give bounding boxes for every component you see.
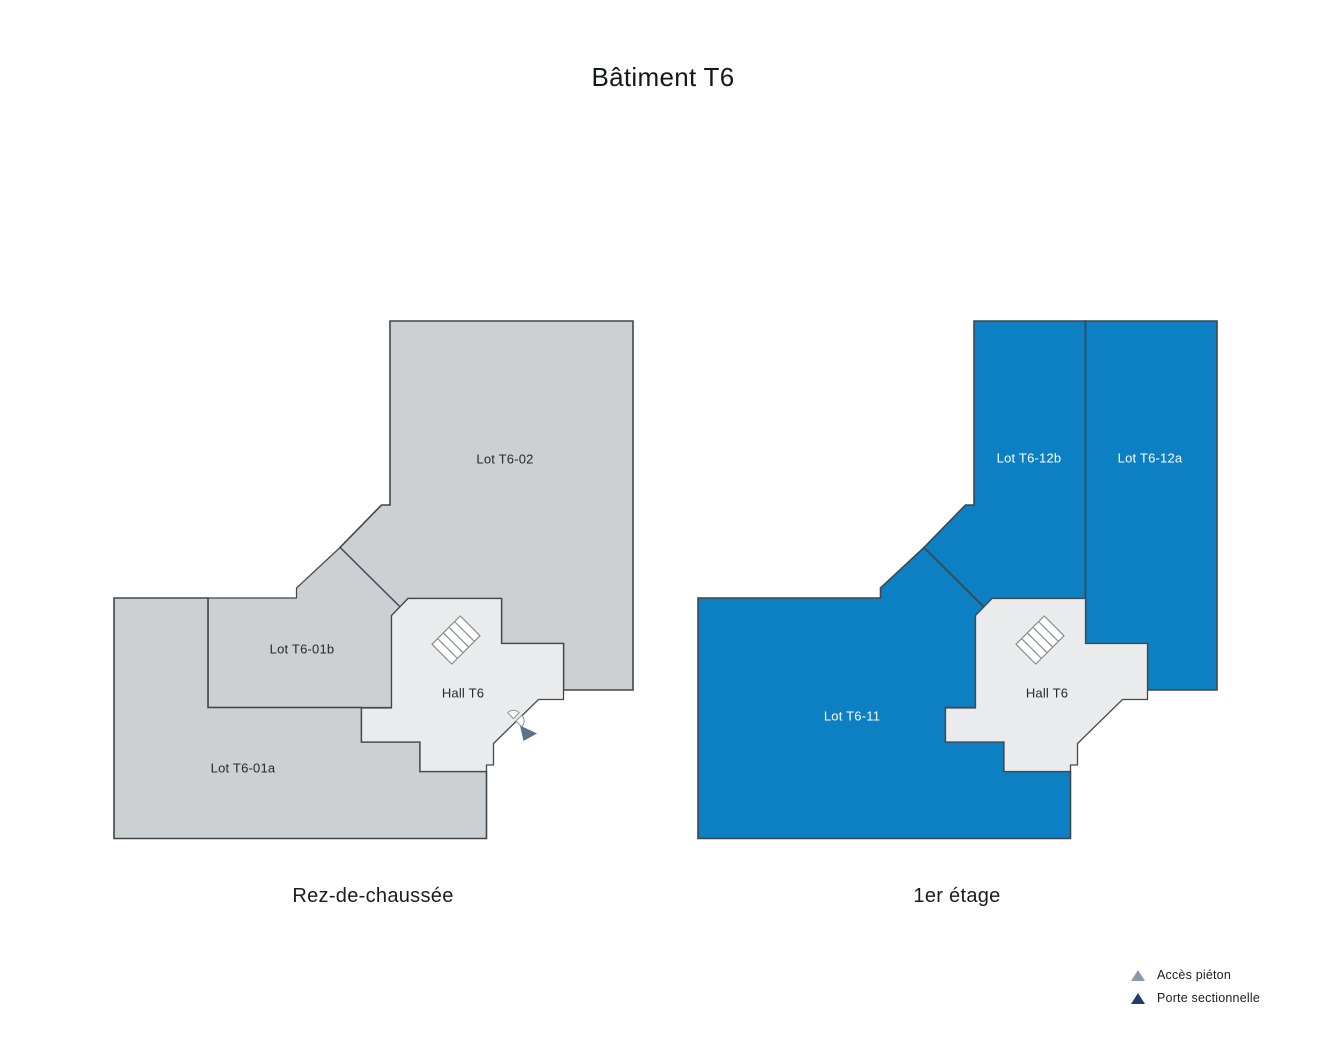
lot-t6-12a-label: Lot T6-12a	[1118, 451, 1183, 466]
floor-first	[698, 321, 1217, 839]
caption-first-floor: 1er étage	[913, 885, 1000, 908]
floor-plan-svg	[0, 0, 1330, 1060]
page: Bâtiment T6	[0, 0, 1330, 1060]
lot-t6-12b-label: Lot T6-12b	[997, 451, 1062, 466]
lot-t6-11-label: Lot T6-11	[824, 709, 880, 724]
pedestrian-access-legend-icon	[1131, 970, 1145, 981]
lot-t6-01b-label: Lot T6-01b	[270, 642, 335, 657]
hall-t6-first-label: Hall T6	[1026, 686, 1068, 701]
pedestrian-access-icon	[520, 726, 537, 742]
legend: Accès piéton Porte sectionnelle	[1131, 967, 1260, 1006]
legend-label-pedestrian: Accès piéton	[1157, 968, 1231, 982]
legend-item-pedestrian: Accès piéton	[1131, 967, 1260, 983]
legend-item-sectional-door: Porte sectionnelle	[1131, 990, 1260, 1006]
floor-ground	[114, 321, 633, 839]
legend-label-sectional-door: Porte sectionnelle	[1157, 991, 1260, 1005]
lot-t6-02-label: Lot T6-02	[476, 452, 533, 467]
caption-ground-floor: Rez-de-chaussée	[292, 885, 453, 908]
lot-t6-01a-label: Lot T6-01a	[211, 761, 276, 776]
sectional-door-legend-icon	[1131, 993, 1145, 1004]
hall-t6-ground-label: Hall T6	[442, 686, 484, 701]
lot-t6-12a-shape	[1086, 321, 1218, 690]
